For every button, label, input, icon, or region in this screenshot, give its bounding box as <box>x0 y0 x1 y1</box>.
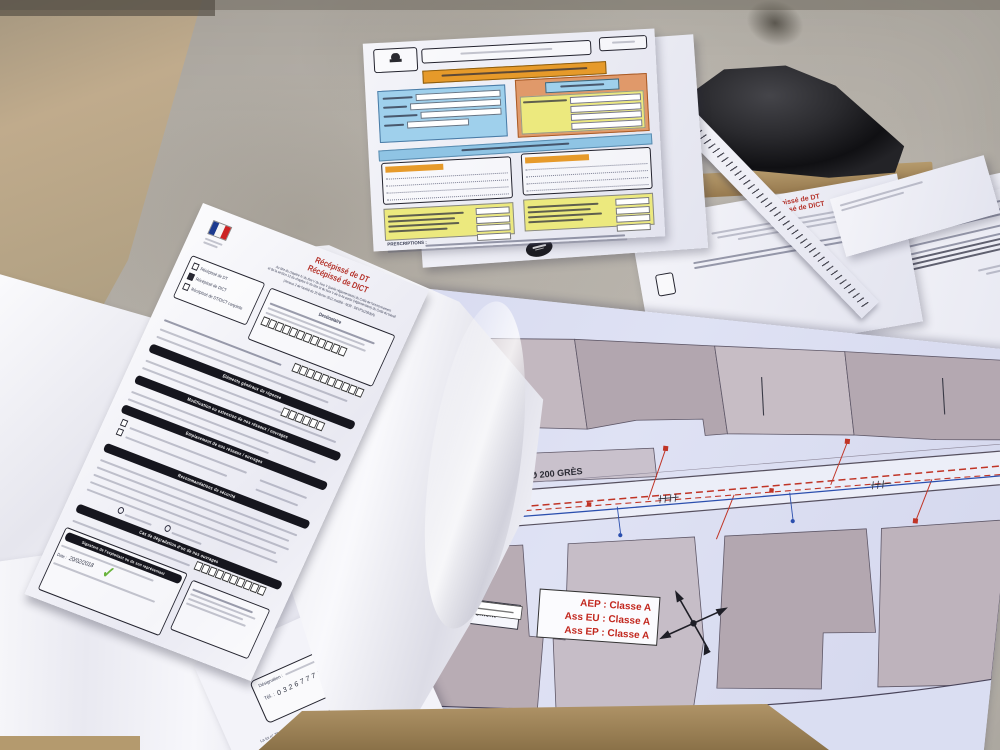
band-text-line <box>461 143 570 152</box>
orange-box-yellow-panel <box>520 90 646 134</box>
map-legend: AEP : Classe A Ass EU : Classe A Ass EP … <box>537 589 660 645</box>
fiche-header-right-cell <box>599 35 648 51</box>
plan-checkbox <box>116 428 124 437</box>
radio-option <box>163 524 171 533</box>
field-label <box>384 114 418 118</box>
bench-sliver-bottom-left <box>0 736 140 750</box>
prescriptions-label: PRESCRIPTIONS : <box>387 240 427 247</box>
field-value-cell <box>407 118 469 128</box>
radio-option <box>117 506 125 515</box>
fiche-header-cell <box>421 40 592 64</box>
fiche-yellow-box-left <box>383 202 514 241</box>
text-line <box>460 48 552 55</box>
field-value-cell <box>616 214 650 223</box>
field-label <box>528 219 583 224</box>
checkbox-dt-dict <box>182 283 190 292</box>
fiche-logo-cell <box>373 47 418 73</box>
field-value-cell <box>615 197 649 206</box>
checkbox-dict <box>187 272 195 281</box>
field-label <box>523 99 567 103</box>
designation-label: Désignation : <box>258 673 284 688</box>
field-label <box>389 228 448 233</box>
date-label: Date : <box>57 551 68 559</box>
field-label <box>383 106 407 109</box>
text-line <box>561 83 604 87</box>
field-value-cell <box>476 223 510 232</box>
tel-label: Tél. : <box>263 692 276 702</box>
checkbox-dt <box>191 262 199 271</box>
field-label <box>388 222 459 228</box>
text-line <box>611 41 634 44</box>
field-line <box>259 479 307 499</box>
fiche-white-box-left <box>381 156 513 205</box>
field-value-cell <box>617 222 651 231</box>
date-value-handwritten: 20/02/2018 <box>68 556 94 569</box>
field-line <box>188 598 244 621</box>
fiche-form: PRESCRIPTIONS : <box>363 29 665 252</box>
plan-checkbox <box>120 419 128 428</box>
photo-of-documents-on-table: NOTA 1 : NOTA 2 : Récépissé de DT Récépi… <box>0 0 1000 750</box>
field-label <box>528 213 602 219</box>
fiche-yellow-box-right <box>523 193 654 232</box>
field-value-cell <box>477 232 511 241</box>
recepisse-type-checkboxes: Récépissé de DT Récépissé de DICT Récépi… <box>173 255 266 326</box>
field-label <box>383 96 413 100</box>
field-value-cell <box>476 206 510 215</box>
wall-corner-shadow <box>0 0 215 16</box>
french-flag-logo <box>207 220 232 241</box>
table-stain <box>727 0 822 65</box>
fiche-white-box-right <box>521 147 653 196</box>
checkbox-box-outline <box>655 272 677 297</box>
fiche-blue-box <box>377 84 508 143</box>
fiche-logo <box>388 53 403 66</box>
title-text-line <box>442 67 587 77</box>
fiche-orange-box <box>515 73 650 138</box>
field-value-cell <box>476 215 510 224</box>
field-value-cell <box>616 205 650 214</box>
field-label <box>384 124 404 127</box>
signature-check-mark: ✓ <box>101 567 116 579</box>
